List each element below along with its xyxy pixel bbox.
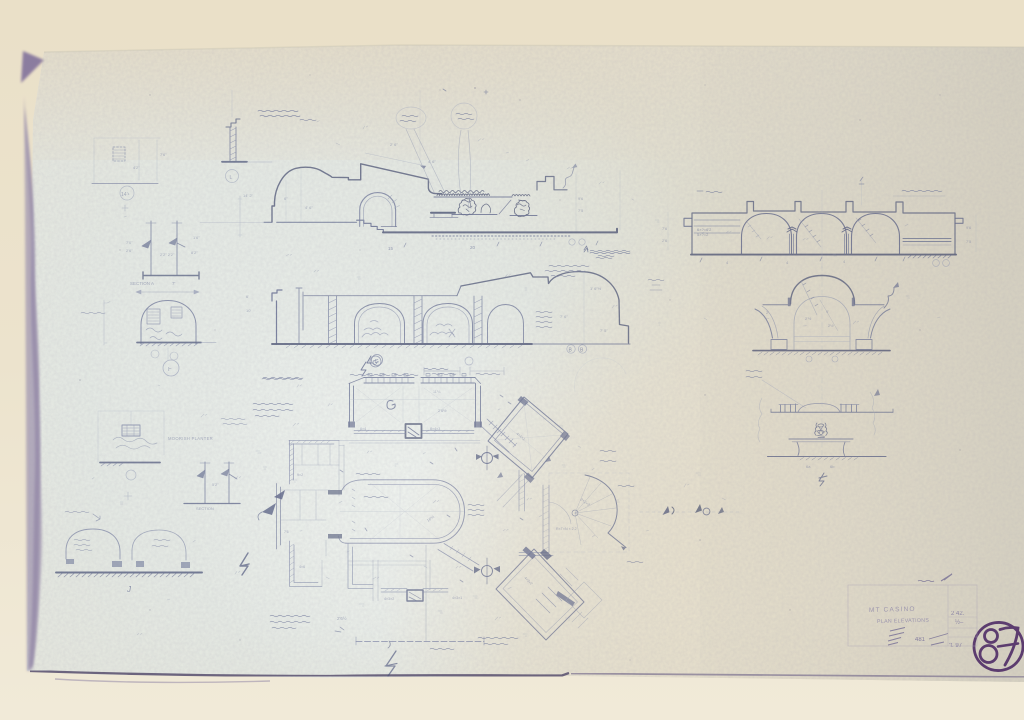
svg-text:10': 10' [246,308,251,313]
svg-text:9×2: 9×2 [297,473,303,477]
svg-text:G: G [375,359,379,365]
svg-text:7' 6": 7' 6" [560,314,568,319]
svg-text:5×?=2: 5×?=2 [697,232,709,237]
svg-text:R×T×N × 2.2: R×T×N × 2.2 [556,527,577,531]
svg-text:5'2": 5'2" [212,482,219,487]
svg-text:2' 6": 2' 6" [390,142,398,147]
svg-text:6b: 6b [830,464,835,469]
svg-text:‘f. 97: ‘f. 97 [949,643,963,649]
svg-text:L: L [230,175,233,181]
svg-text:8×4×3: 8×4×3 [430,427,440,431]
svg-text:MOORISH PLANTER: MOORISH PLANTER [168,436,213,441]
svg-text:9'6: 9'6 [966,225,972,230]
svg-text:F: F [168,367,172,373]
svg-text:9'6: 9'6 [578,196,584,201]
svg-text:11'¼: 11'¼ [433,390,441,394]
svg-text:8×4: 8×4 [360,427,366,431]
svg-text:4×3×1: 4×3×1 [452,596,462,600]
svg-text:6': 6' [246,294,249,299]
svg-text:7' 5": 7' 5" [600,328,608,333]
svg-text:4'2": 4'2" [133,165,140,170]
svg-text:SECTION: SECTION [196,506,214,511]
svg-text:2½': 2½' [828,323,835,328]
svg-text:14’¹: 14’¹ [121,192,130,198]
svg-text:MT CASINO: MT CASINO [869,606,916,614]
svg-text:½–: ½– [955,619,964,626]
svg-text:9': 9' [826,309,829,314]
svg-text:7'0": 7'0" [126,240,133,245]
svg-text:15: 15 [388,246,394,251]
svg-text:2': 2' [766,310,769,315]
svg-text:481: 481 [915,637,926,643]
svg-text:20: 20 [470,245,476,250]
svg-text:7': 7' [172,281,176,286]
svg-text:2 42.: 2 42. [951,611,965,617]
svg-text:7'6": 7'6" [160,152,167,157]
svg-text:4' 6": 4' 6" [305,205,313,210]
svg-text:6a: 6a [806,464,811,469]
svg-text:2'6½: 2'6½ [438,408,447,413]
svg-text:7'6: 7'6 [284,530,289,534]
svg-text:SECTION A: SECTION A [130,281,154,286]
svg-text:2'6: 2'6 [662,238,668,243]
svg-text:7'6: 7'6 [662,226,668,231]
svg-text:14' 2": 14' 2" [243,193,254,198]
svg-text:1'6": 1'6" [193,235,200,240]
svg-text:4×3×2: 4×3×2 [384,597,394,601]
svg-text:6": 6" [284,196,288,201]
svg-text:2'6": 2'6" [126,248,133,253]
svg-text:8'2": 8'2" [191,250,198,255]
svg-text:2'2" 2'2": 2'2" 2'2" [160,252,175,257]
svg-text:1' 6"½: 1' 6"½ [590,286,602,291]
svg-text:4×6: 4×6 [299,565,305,569]
svg-text:7'5: 7'5 [578,208,584,213]
svg-text:2'½: 2'½ [805,316,812,321]
svg-text:7'5: 7'5 [966,239,972,244]
svg-text:2'6½: 2'6½ [337,615,347,621]
